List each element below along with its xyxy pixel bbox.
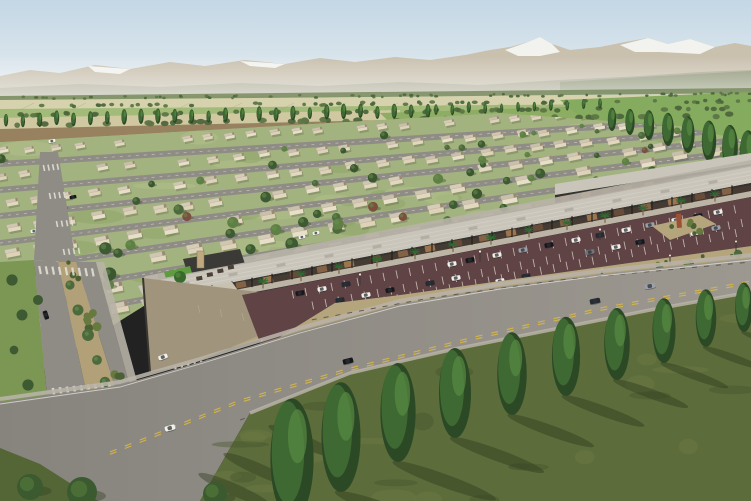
median-shrub <box>115 373 122 380</box>
median-shrub <box>88 313 94 319</box>
grass-patch <box>212 441 269 447</box>
distant-tree <box>526 94 529 97</box>
distant-tree <box>39 104 45 108</box>
distant-tree <box>434 95 438 98</box>
distant-tree <box>73 97 76 100</box>
poplar-highlight <box>309 108 311 113</box>
entry-sculpture <box>676 214 682 228</box>
distant-tree <box>489 94 492 97</box>
distant-tree <box>720 100 724 104</box>
distant-tree <box>409 94 413 97</box>
distant-tree <box>399 94 402 97</box>
crosswalk-stripe <box>39 266 41 274</box>
poplar-highlight <box>501 104 502 108</box>
verge-tree <box>17 310 28 321</box>
distant-tree <box>554 108 560 112</box>
palm-frond <box>301 275 306 276</box>
distant-tree <box>162 97 166 100</box>
tree-highlight <box>262 193 267 198</box>
tree-highlight <box>175 206 180 211</box>
lamp-head <box>735 241 737 243</box>
crosswalk-stripe <box>66 267 68 275</box>
tree-highlight <box>314 211 318 215</box>
median-shrub <box>75 276 81 282</box>
distant-tree <box>130 104 134 108</box>
poplar-highlight <box>411 106 413 112</box>
tree-highlight <box>269 162 273 166</box>
poplar-highlight <box>360 105 362 111</box>
distant-tree <box>735 92 739 95</box>
poplar-highlight <box>191 111 193 117</box>
distant-tree <box>65 111 70 115</box>
poplar-highlight <box>729 129 736 149</box>
median-shrub <box>92 322 101 331</box>
tree-highlight <box>351 165 355 169</box>
verge-tree <box>10 346 19 355</box>
poplar-highlight <box>377 107 379 113</box>
distant-tree <box>724 105 730 109</box>
distant-tree <box>136 103 140 107</box>
distant-tree <box>619 93 622 96</box>
grass-patch <box>230 472 256 483</box>
distant-tree <box>419 102 423 106</box>
distant-tree <box>144 120 153 125</box>
distant-tree <box>370 102 375 106</box>
distant-tree <box>101 103 106 107</box>
distant-tree <box>597 95 601 98</box>
distant-tree <box>725 111 733 116</box>
tree-highlight <box>473 190 478 195</box>
distant-tree <box>454 107 459 111</box>
distant-tree <box>89 96 93 99</box>
palm-frond <box>605 216 610 217</box>
palm-frond <box>339 267 344 268</box>
distant-tree <box>161 121 169 126</box>
grass-patch <box>637 353 657 365</box>
distant-tree <box>489 108 494 112</box>
distant-tree <box>161 112 169 116</box>
distant-tree <box>123 95 127 98</box>
poplar-highlight <box>242 109 244 115</box>
poplar-highlight <box>288 409 307 463</box>
distant-tree <box>313 102 317 106</box>
island-shrub <box>696 228 703 235</box>
tree-highlight <box>75 307 79 311</box>
island-shrub <box>692 231 696 235</box>
palm-frond <box>487 238 492 239</box>
tree-highlight <box>580 124 582 126</box>
distant-tree <box>736 99 740 103</box>
distant-tree <box>460 109 465 113</box>
median-shrub <box>83 317 88 322</box>
crosswalk-stripe <box>79 268 81 276</box>
tree-highlight <box>272 225 277 230</box>
distant-tree <box>460 100 464 104</box>
distant-tree <box>358 95 361 98</box>
distant-tree <box>591 114 600 119</box>
distant-tree <box>711 92 715 95</box>
distant-tree <box>205 95 209 98</box>
distant-tree <box>301 117 308 122</box>
distant-tree <box>719 92 722 95</box>
tree-highlight <box>369 174 373 178</box>
distant-tree <box>22 96 25 99</box>
distant-tree <box>541 101 547 105</box>
crosswalk-stripe <box>59 267 61 275</box>
poplar-highlight <box>509 340 522 377</box>
distant-tree <box>711 107 717 111</box>
distant-tree <box>509 95 513 98</box>
aerial-rendering <box>0 0 751 501</box>
distant-tree <box>674 94 678 97</box>
poplar-highlight <box>648 113 653 126</box>
palm-frond <box>491 238 496 239</box>
distant-tree <box>455 101 460 105</box>
distant-tree <box>695 101 699 105</box>
verge-shrub <box>701 254 705 258</box>
distant-tree <box>231 97 234 100</box>
poplar-highlight <box>567 102 569 106</box>
poplar-highlight <box>667 116 672 131</box>
distant-tree <box>493 93 496 96</box>
poplar-highlight <box>56 112 58 118</box>
tree-highlight <box>299 218 304 223</box>
tree-highlight <box>94 357 98 361</box>
poplar-highlight <box>22 116 24 121</box>
tree-highlight <box>639 133 642 136</box>
tree-highlight <box>71 481 88 498</box>
light-head <box>359 273 361 275</box>
distant-tree <box>72 105 76 109</box>
poplar-highlight <box>157 110 159 117</box>
distant-tree <box>430 94 433 97</box>
tree-highlight <box>479 141 482 144</box>
tree-highlight <box>149 181 152 184</box>
distant-tree <box>523 94 526 97</box>
palm-frond <box>715 195 720 196</box>
poplar-highlight <box>395 372 410 416</box>
poplar-highlight <box>39 114 41 120</box>
tree-highlight <box>595 130 597 132</box>
palm-frond <box>643 209 648 210</box>
tree-highlight <box>85 332 89 336</box>
tree-highlight <box>529 176 532 179</box>
median-shrub <box>66 260 70 264</box>
distant-tree <box>41 96 45 99</box>
distant-tree <box>363 110 369 114</box>
poplar-highlight <box>292 107 294 114</box>
distant-tree <box>516 95 520 98</box>
verge-tree <box>33 295 43 305</box>
poplar-highlight <box>208 112 210 117</box>
tree-highlight <box>675 128 678 131</box>
distant-tree <box>329 102 334 106</box>
tree-highlight <box>127 241 132 246</box>
distant-tree <box>159 96 162 99</box>
poplar-highlight <box>394 105 396 112</box>
tree-highlight <box>381 132 385 136</box>
tree-highlight <box>247 245 252 250</box>
poplar-highlight <box>704 295 713 321</box>
tree-highlight <box>537 170 541 174</box>
distant-tree <box>525 107 532 111</box>
distant-tree <box>727 93 730 96</box>
distant-tree <box>34 96 38 99</box>
crosswalk-stripe <box>92 268 94 276</box>
palm-frond <box>377 260 382 261</box>
tree-highlight <box>445 145 447 147</box>
poplar-highlight <box>611 110 615 120</box>
light-head <box>599 228 601 230</box>
poplar-highlight <box>662 304 672 333</box>
poplar-highlight <box>583 100 585 104</box>
crosswalk-stripe <box>46 266 48 274</box>
distant-tree <box>402 93 406 96</box>
poplar-highlight <box>259 108 261 115</box>
distant-tree <box>45 96 48 99</box>
distant-tree <box>540 108 547 112</box>
palm-frond <box>263 282 268 283</box>
tree-highlight <box>114 250 118 254</box>
distant-tree <box>360 101 366 105</box>
tree-highlight <box>334 220 339 225</box>
grass-patch <box>679 439 698 455</box>
distant-tree <box>381 96 384 99</box>
tree-highlight <box>504 178 507 181</box>
palm-frond <box>259 282 264 283</box>
distant-tree <box>336 102 342 106</box>
tree-highlight <box>479 157 483 161</box>
distant-tree <box>703 99 707 103</box>
grass-patch <box>374 479 418 486</box>
light-head <box>479 250 481 252</box>
distant-tree <box>96 104 102 108</box>
tree-highlight <box>101 244 107 250</box>
palm-frond <box>711 195 716 196</box>
crosswalk-stripe <box>52 267 54 275</box>
distant-tree <box>258 102 263 106</box>
tree-highlight <box>67 282 71 286</box>
poplar-highlight <box>337 392 354 441</box>
distant-tree <box>350 94 354 97</box>
palm-frond <box>639 209 644 210</box>
distant-tree <box>144 97 147 100</box>
tree-highlight <box>369 203 373 207</box>
verge-tree <box>6 274 17 285</box>
poplar-highlight <box>600 99 602 104</box>
poplar-highlight <box>742 287 750 309</box>
palm-frond <box>453 245 458 246</box>
poplar-highlight <box>615 314 626 346</box>
palm-frond <box>297 275 302 276</box>
distant-tree <box>661 107 669 111</box>
distant-tree <box>705 106 709 110</box>
poplar-highlight <box>90 112 92 118</box>
distant-tree <box>253 101 259 105</box>
distant-tree <box>14 122 20 127</box>
distant-tree <box>693 93 697 96</box>
distant-tree <box>52 97 56 100</box>
distant-tree <box>302 103 306 107</box>
crosswalk-stripe <box>85 268 87 276</box>
palm-frond <box>411 253 416 254</box>
tree-highlight <box>197 178 201 182</box>
grass-patch <box>575 450 595 464</box>
poplar-highlight <box>276 109 278 115</box>
poplar-highlight <box>550 101 552 106</box>
distant-tree <box>660 93 664 96</box>
poplar-highlight <box>343 105 345 112</box>
poplar-highlight <box>563 324 575 359</box>
tree-highlight <box>227 230 231 234</box>
poplar-highlight <box>6 115 8 120</box>
distant-tree <box>713 114 720 119</box>
distant-tree <box>148 103 153 107</box>
palm-frond <box>373 260 378 261</box>
palm-frond <box>567 224 572 225</box>
tree-highlight <box>229 218 234 223</box>
poplar-highlight <box>124 111 126 118</box>
palm-frond <box>415 253 420 254</box>
poplar-highlight <box>534 103 535 107</box>
tree-highlight <box>287 239 293 245</box>
poplar-highlight <box>225 109 227 115</box>
tree-highlight <box>20 477 34 491</box>
tree-highlight <box>450 201 454 205</box>
distant-tree <box>163 104 168 108</box>
tree-highlight <box>642 148 645 151</box>
poplar-highlight <box>141 110 143 117</box>
entry-pylon <box>197 251 204 268</box>
lawn-tree <box>174 271 186 283</box>
tree-highlight <box>532 131 534 133</box>
distant-tree <box>559 94 563 97</box>
poplar-highlight <box>174 110 176 116</box>
poplar-highlight <box>687 119 693 135</box>
tree-highlight <box>313 181 316 184</box>
distant-tree <box>83 97 87 100</box>
poplar-highlight <box>452 356 466 396</box>
poplar-highlight <box>708 124 714 142</box>
palm-frond <box>449 245 454 246</box>
distant-tree <box>268 95 272 98</box>
poplar-highlight <box>452 105 454 110</box>
island-shrub <box>669 224 674 229</box>
palm-frond <box>525 231 530 232</box>
distant-tree <box>154 103 159 107</box>
distant-tree <box>416 95 419 98</box>
verge-tree <box>22 379 33 390</box>
palm-frond <box>563 224 568 225</box>
tree-highlight <box>623 159 626 162</box>
tree-highlight <box>520 132 523 135</box>
tree-highlight <box>183 213 187 217</box>
distant-tree <box>403 102 409 106</box>
palm-frond <box>677 202 682 203</box>
distant-tree <box>319 103 325 107</box>
distant-tree <box>189 104 194 108</box>
tree-highlight <box>205 484 218 497</box>
distant-tree <box>30 113 37 117</box>
poplar-highlight <box>518 103 520 107</box>
tree-highlight <box>282 147 285 150</box>
distant-tree <box>235 94 238 97</box>
palm-frond <box>529 231 534 232</box>
distant-tree <box>155 96 158 99</box>
poplar-highlight <box>326 106 328 113</box>
poplar-highlight <box>468 103 470 108</box>
distant-tree <box>645 94 648 97</box>
palm-frond <box>681 202 686 203</box>
tree-highlight <box>595 153 597 155</box>
tree-highlight <box>434 175 439 180</box>
distant-tree <box>196 119 206 124</box>
lamp-head <box>669 255 671 257</box>
tree-highlight <box>133 198 137 202</box>
tree-highlight <box>333 214 337 218</box>
tree-highlight <box>467 169 471 173</box>
tree-highlight <box>649 144 651 146</box>
poplar-highlight <box>73 114 75 120</box>
distant-tree <box>371 94 375 97</box>
distant-tree <box>684 100 689 104</box>
distant-tree <box>686 107 691 111</box>
distant-tree <box>429 100 435 104</box>
distant-tree <box>653 99 657 103</box>
tree-highlight <box>525 153 527 155</box>
rendering-viewport <box>0 0 751 501</box>
palm-frond <box>335 267 340 268</box>
distant-tree <box>614 100 620 104</box>
distant-tree <box>233 109 239 113</box>
tree-highlight <box>341 148 344 151</box>
poplar-highlight <box>107 112 109 118</box>
distant-tree <box>699 92 702 95</box>
tree-highlight <box>400 214 404 218</box>
palm-frond <box>601 216 606 217</box>
distant-tree <box>179 95 182 98</box>
tree-highlight <box>175 272 180 277</box>
distant-tree <box>314 96 318 99</box>
distant-tree <box>668 94 672 97</box>
distant-tree <box>675 106 682 110</box>
distant-tree <box>120 103 124 107</box>
distant-tree <box>585 94 588 97</box>
poplar-highlight <box>428 105 430 111</box>
distant-tree <box>298 94 301 97</box>
distant-tree <box>502 93 505 96</box>
distant-tree <box>109 103 114 107</box>
grass-patch <box>239 429 272 440</box>
poplar-highlight <box>436 105 438 110</box>
poplar-highlight <box>485 104 487 109</box>
distant-tree <box>541 95 545 98</box>
poplar-highlight <box>629 111 633 123</box>
island-shrub <box>687 219 693 225</box>
tree-highlight <box>459 145 462 148</box>
distant-tree <box>472 101 478 105</box>
crosswalk-stripe <box>72 268 74 276</box>
